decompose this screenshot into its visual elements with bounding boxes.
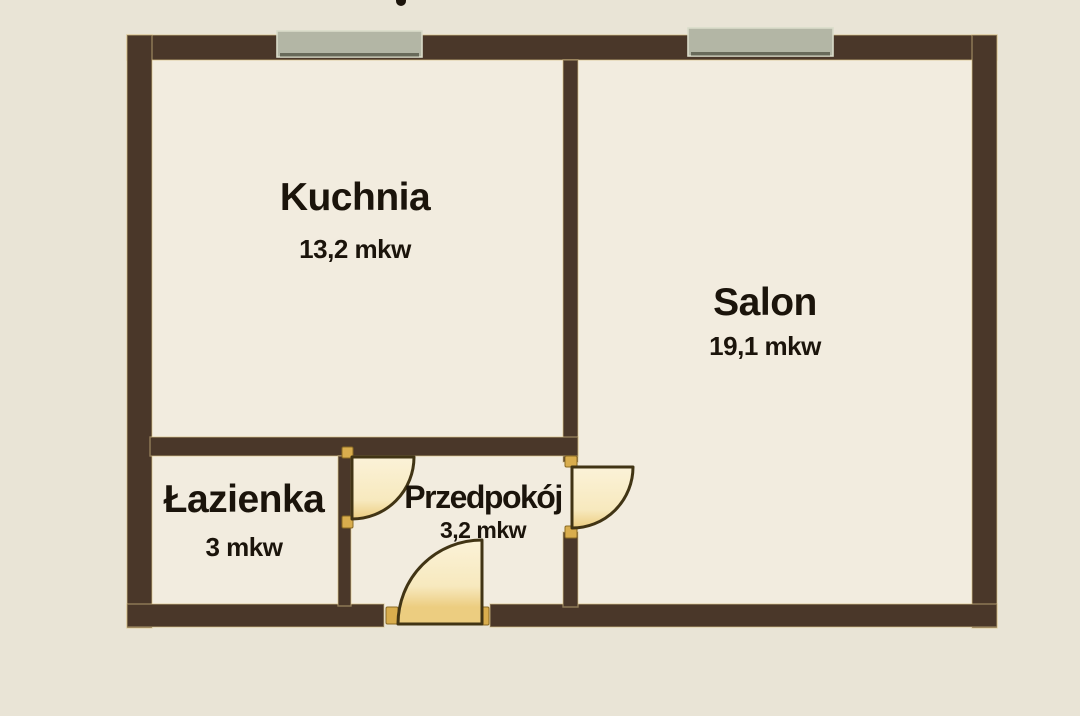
wall-kuchnia-salon: [563, 60, 578, 462]
room-salon: [566, 48, 984, 616]
entrance-door-jamb-left: [386, 607, 398, 624]
wall-right: [972, 35, 997, 628]
wall-top: [127, 35, 997, 60]
window-kuchnia: [277, 31, 422, 57]
room-kuchnia: [140, 48, 576, 448]
floor-plan-canvas: Kuchnia 13,2 mkw Salon 19,1 mkw Łazienka…: [0, 0, 1080, 716]
wall-przedpokoj-salon-lower: [563, 532, 578, 607]
wall-lazienka-przedpokoj: [338, 456, 351, 606]
wall-kuchnia-bottom: [150, 437, 578, 456]
wall-left: [127, 35, 152, 628]
salon-door-jamb-top: [565, 456, 577, 467]
window-salon: [688, 28, 833, 56]
wall-bottom-left: [127, 604, 384, 627]
floor-plan-drawing: [0, 0, 1080, 716]
room-lazienka: [140, 444, 350, 616]
